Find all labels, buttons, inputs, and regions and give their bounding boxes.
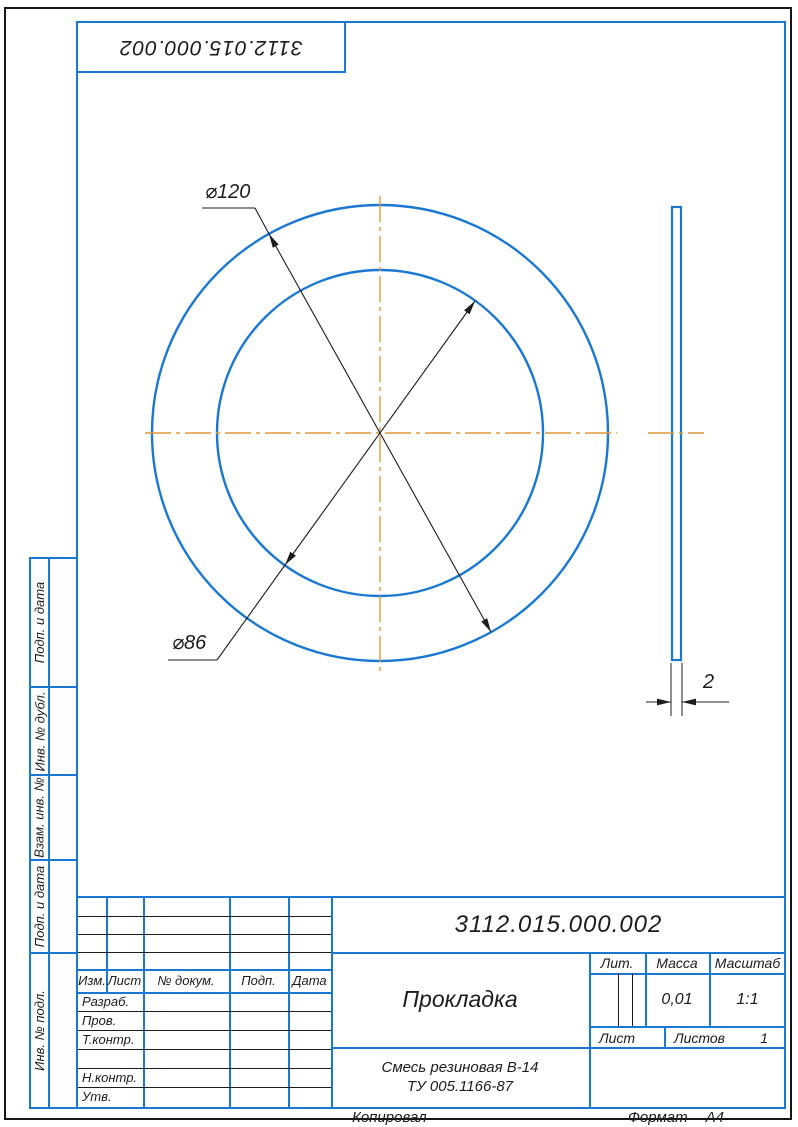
margin-label: Подп. и дата: [32, 582, 47, 663]
tb-header-list: Лист: [106, 969, 143, 992]
tb-thin-line: [78, 1049, 331, 1050]
tb-lit-subline: [632, 973, 633, 1026]
margin-box-podp-i-data-1: Подп. и дата: [29, 557, 78, 688]
tb-thin-line: [78, 952, 331, 953]
margin-label: Инв. № дубл.: [32, 691, 47, 771]
margin-label: Взам. инв. №: [32, 777, 47, 857]
tb-material: Смесь резиновая В-14 ТУ 005.1166-87: [331, 1047, 589, 1107]
tb-row-nkontr: Н.контр.: [78, 1068, 143, 1087]
margin-label: Подп. и дата: [32, 866, 47, 947]
tb-thin-line: [78, 916, 331, 917]
margin-box-label-cell: Инв. № подл.: [31, 954, 50, 1107]
tb-row-razrab: Разраб.: [78, 992, 143, 1011]
tb-sheet-label: Лист: [589, 1026, 664, 1049]
format-cell: Формат А4: [628, 1109, 724, 1126]
outer-diameter-label: ⌀120: [205, 179, 250, 204]
margin-box-vzam-inv: Взам. инв. №: [29, 774, 78, 861]
tb-header-podp: Подп.: [229, 969, 288, 992]
tb-row-utv: Утв.: [78, 1087, 143, 1106]
tb-row-prov: Пров.: [78, 1011, 143, 1030]
copied-label: Копировал: [352, 1109, 427, 1126]
tb-sheets-cell: Листов 1: [664, 1026, 786, 1049]
tb-line: [288, 898, 290, 1107]
margin-box-label-cell: Инв. № дубл.: [31, 688, 50, 774]
margin-box-label-cell: Подп. и дата: [31, 861, 50, 952]
title-block: Изм. Лист № докум. Подп. Дата Разраб. Пр…: [76, 896, 786, 1109]
rotated-designation-box: 3112.015.000.002: [76, 21, 346, 73]
tb-material-line2: ТУ 005.1166-87: [407, 1077, 513, 1097]
inner-diameter-label: ⌀86: [172, 630, 206, 655]
tb-lit-subline: [618, 973, 619, 1026]
tb-lit-label: Лит.: [589, 952, 645, 973]
margin-box-label-cell: Взам. инв. №: [31, 776, 50, 859]
rotated-designation-text: 3112.015.000.002: [119, 35, 303, 59]
tb-material-line1: Смесь резиновая В-14: [382, 1058, 539, 1078]
margin-box-podp-i-data-2: Подп. и дата: [29, 859, 78, 954]
tb-scale-value: 1:1: [709, 973, 786, 1026]
tb-header-izm: Изм.: [78, 969, 106, 992]
tb-thin-line: [78, 934, 331, 935]
tb-mass-label: Масса: [645, 952, 709, 973]
tb-mass-value: 0,01: [645, 973, 709, 1026]
tb-part-name: Прокладка: [331, 952, 589, 1047]
tb-line: [229, 898, 231, 1107]
tb-sheets-value: 1: [760, 1030, 768, 1046]
thickness-label: 2: [703, 671, 714, 694]
tb-header-doc: № докум.: [143, 969, 229, 992]
margin-box-label-cell: Подп. и дата: [31, 559, 50, 686]
tb-line: [143, 898, 145, 1107]
margin-box-inv-podl: Инв. № подл.: [29, 952, 78, 1109]
tb-sheets-label: Листов: [674, 1030, 725, 1046]
tb-row-tkontr: Т.контр.: [78, 1030, 143, 1049]
tb-scale-label: Масштаб: [709, 952, 786, 973]
tb-designation: 3112.015.000.002: [331, 898, 786, 952]
margin-label: Инв. № подл.: [32, 990, 47, 1071]
margin-box-inv-dubl: Инв. № дубл.: [29, 686, 78, 776]
tb-header-data: Дата: [288, 969, 331, 992]
format-value: А4: [706, 1109, 724, 1126]
format-label: Формат: [628, 1109, 688, 1126]
